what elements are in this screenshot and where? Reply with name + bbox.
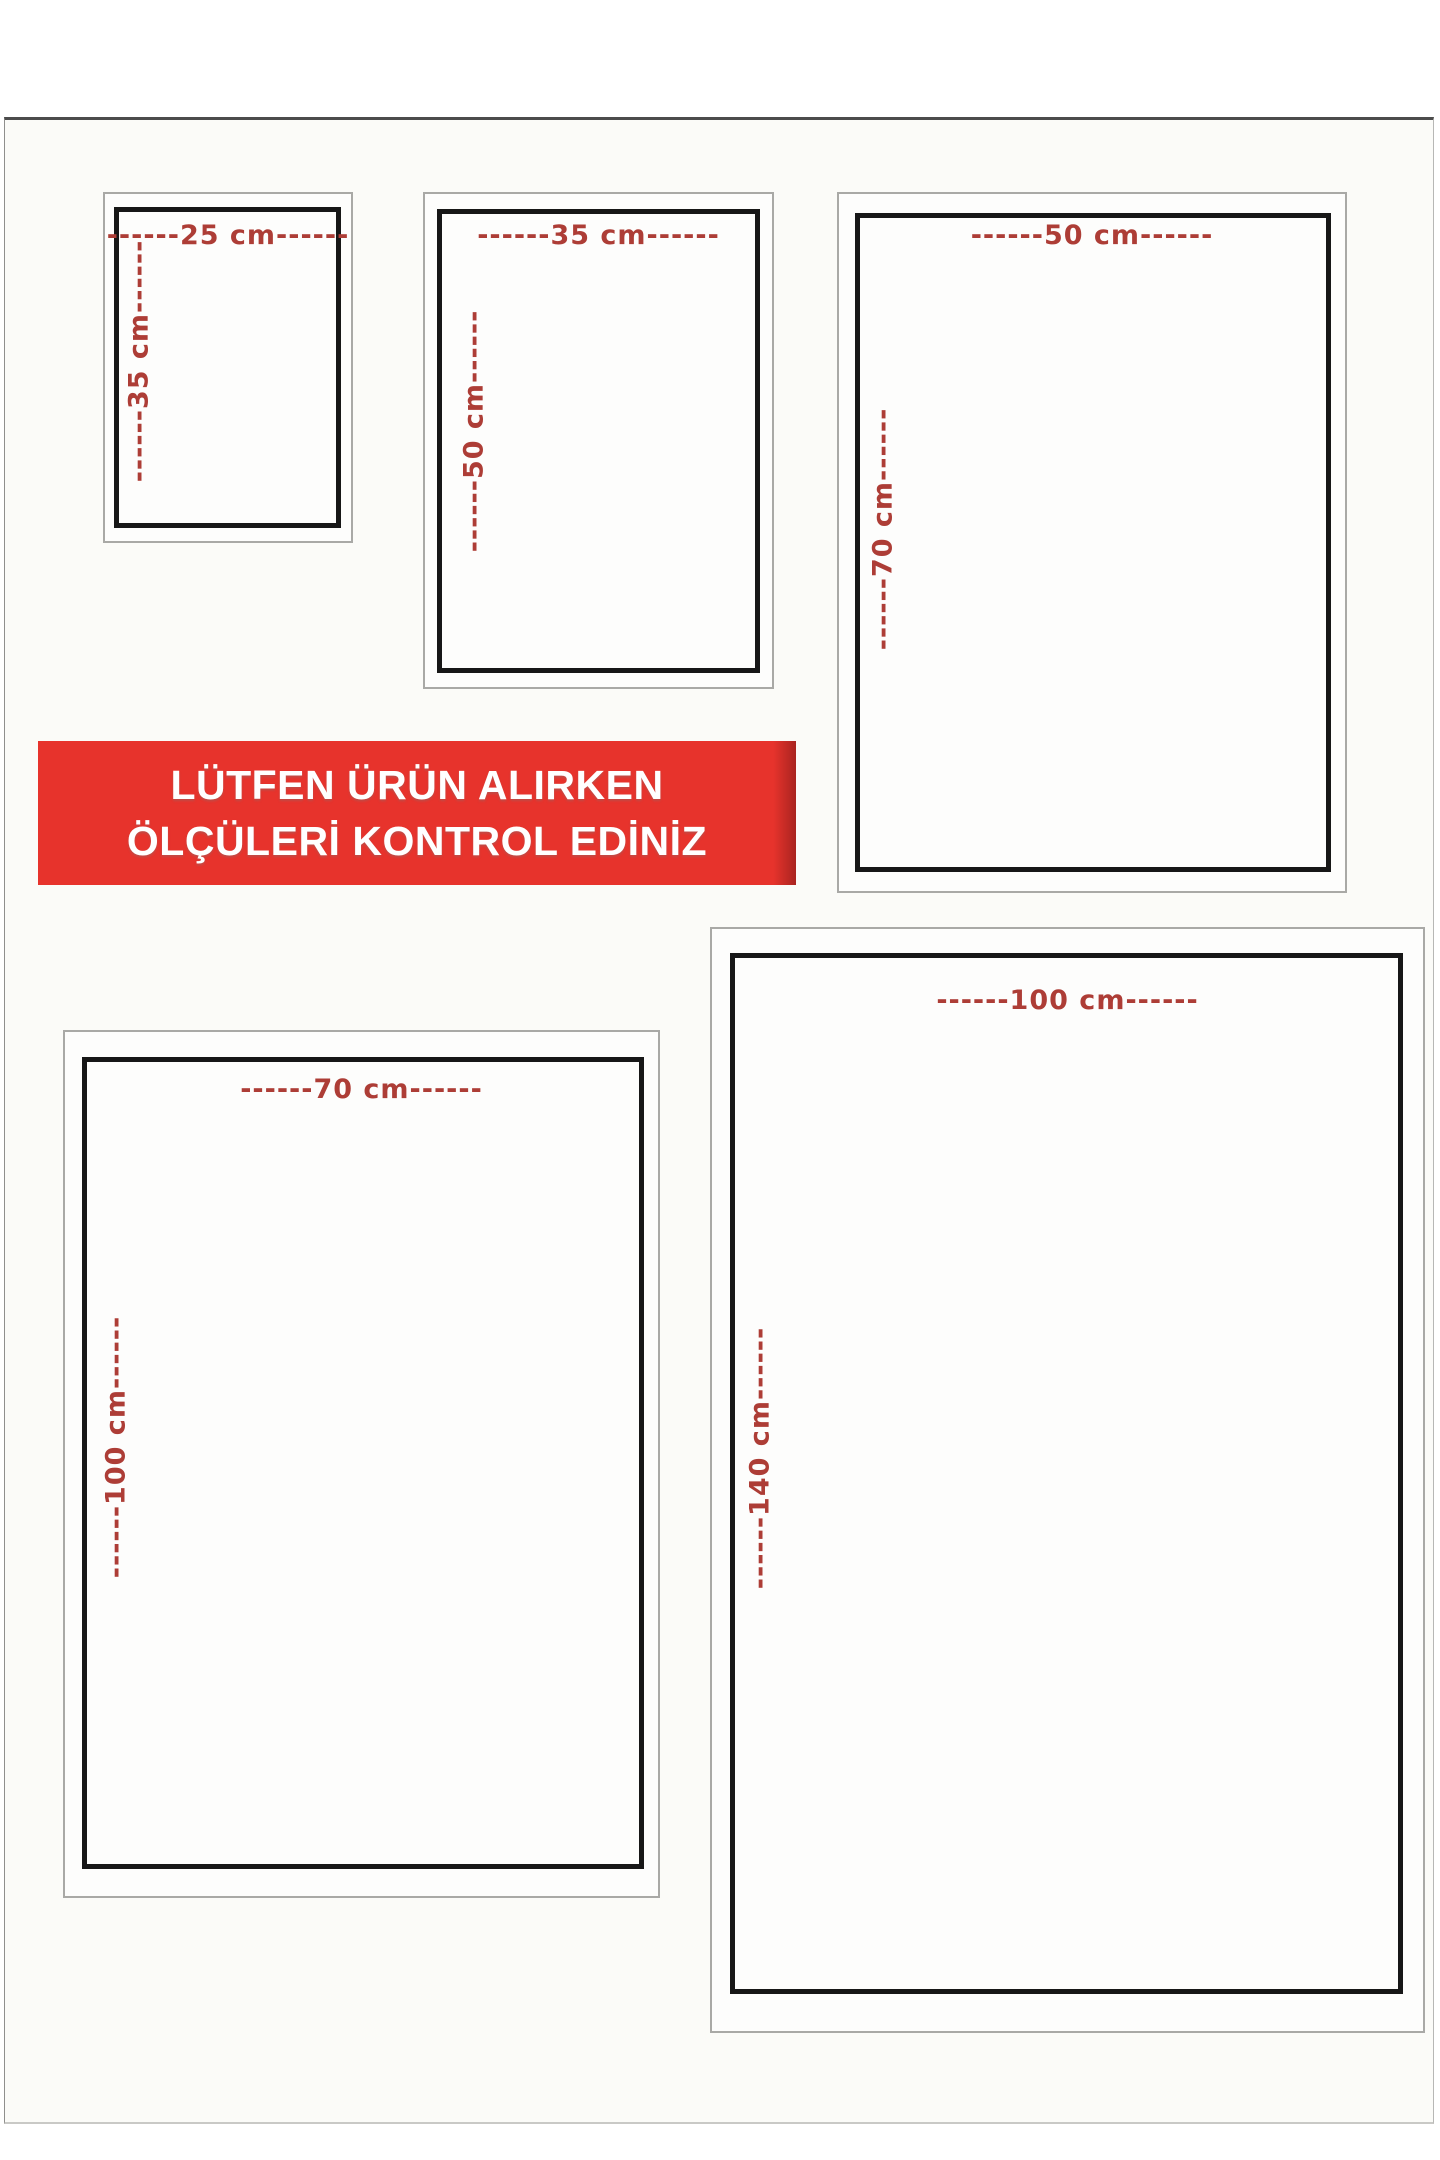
width-dimension-label: ------70 cm------	[65, 1074, 658, 1105]
height-dimension-label: ------50 cm------	[459, 309, 490, 552]
height-dimension-label: ------100 cm------	[101, 1316, 132, 1578]
height-dimension-label: ------35 cm------	[124, 239, 155, 482]
size-chart-image: ------25 cm------ ------35 cm------ ----…	[0, 0, 1440, 2160]
width-dimension-label: ------100 cm------	[712, 985, 1423, 1016]
height-dimension-label: ------140 cm------	[745, 1327, 776, 1589]
size-box-50x70-inner-frame	[855, 213, 1331, 872]
size-box-35x50: ------35 cm------ ------50 cm------	[423, 192, 774, 689]
size-box-70x100: ------70 cm------ ------100 cm------	[63, 1030, 660, 1898]
size-box-25x35: ------25 cm------ ------35 cm------	[103, 192, 353, 543]
height-dimension-label: ------70 cm------	[868, 407, 899, 650]
size-box-100x140-inner-frame	[730, 953, 1403, 1994]
width-dimension-label: ------35 cm------	[425, 220, 772, 251]
size-box-100x140: ------100 cm------ ------140 cm------	[710, 927, 1425, 2033]
size-box-70x100-inner-frame	[82, 1057, 644, 1869]
warning-banner-line1: LÜTFEN ÜRÜN ALIRKEN	[170, 757, 663, 813]
warning-banner-line2: ÖLÇÜLERİ KONTROL EDİNİZ	[127, 813, 707, 869]
warning-banner: LÜTFEN ÜRÜN ALIRKEN ÖLÇÜLERİ KONTROL EDİ…	[38, 741, 796, 885]
size-box-50x70: ------50 cm------ ------70 cm------	[837, 192, 1347, 893]
width-dimension-label: ------50 cm------	[839, 220, 1345, 251]
